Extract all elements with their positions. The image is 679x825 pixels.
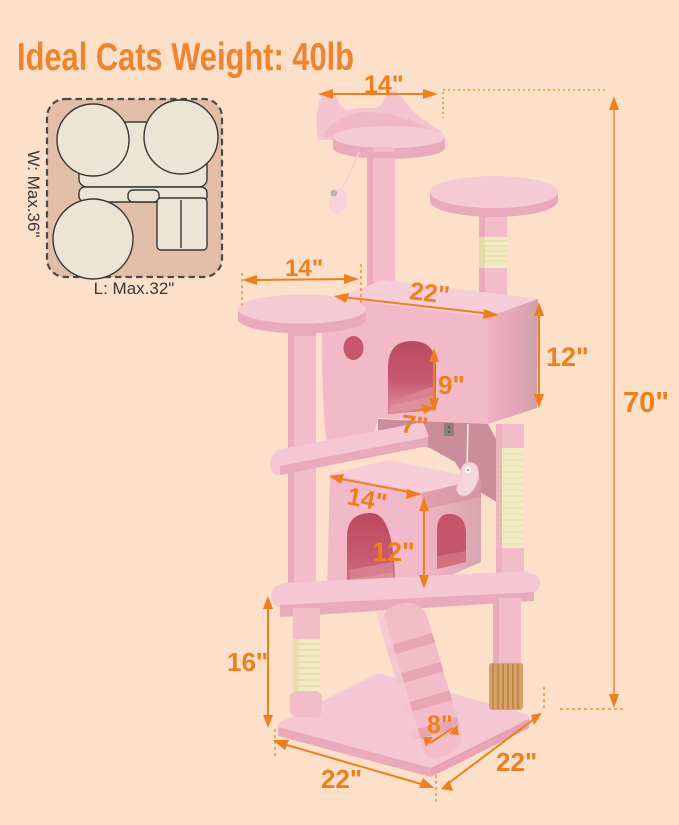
svg-text:22": 22" [496, 747, 537, 777]
svg-text:16": 16" [227, 647, 268, 677]
svg-text:14": 14" [285, 255, 323, 282]
svg-text:8": 8" [427, 711, 453, 739]
svg-text:22": 22" [408, 277, 451, 310]
svg-text:22": 22" [321, 764, 362, 794]
svg-text:12": 12" [546, 342, 589, 372]
svg-text:Ideal Cats Weight: 40lb: Ideal Cats Weight: 40lb [17, 36, 354, 79]
svg-text:70": 70" [623, 387, 669, 419]
svg-text:14": 14" [364, 71, 404, 99]
svg-text:L: Max.32": L: Max.32" [94, 279, 175, 298]
svg-text:7": 7" [399, 408, 430, 441]
svg-text:W: Max.36": W: Max.36" [24, 151, 43, 238]
svg-text:9": 9" [438, 370, 465, 400]
svg-text:12": 12" [372, 537, 415, 567]
